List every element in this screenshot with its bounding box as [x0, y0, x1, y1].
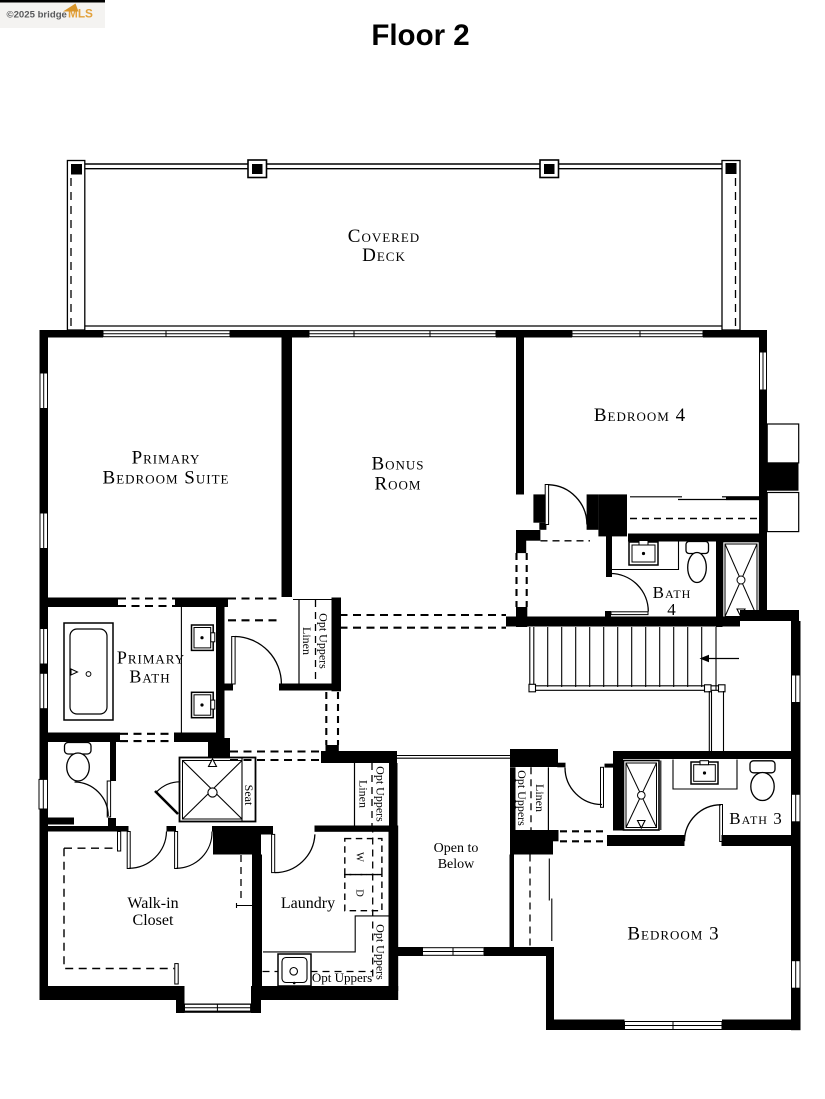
svg-text:Primary: Primary [117, 648, 185, 668]
svg-text:Linen: Linen [300, 627, 314, 655]
svg-text:Opt Uppers: Opt Uppers [374, 766, 388, 822]
svg-text:W: W [354, 852, 365, 862]
svg-text:Opt Uppers: Opt Uppers [374, 924, 388, 980]
svg-text:Open to: Open to [434, 841, 479, 856]
svg-text:Bedroom Suite: Bedroom Suite [103, 468, 230, 489]
svg-text:Bedroom 4: Bedroom 4 [594, 405, 686, 426]
svg-text:Primary: Primary [132, 448, 201, 469]
svg-text:Bath: Bath [129, 667, 170, 687]
svg-text:Room: Room [374, 474, 421, 495]
svg-text:Linen: Linen [533, 784, 547, 812]
svg-text:Bedroom 3: Bedroom 3 [627, 924, 719, 945]
svg-text:Below: Below [438, 857, 475, 872]
svg-text:Laundry: Laundry [281, 895, 335, 912]
svg-text:Bonus: Bonus [371, 454, 424, 475]
svg-text:Floor 2: Floor 2 [371, 19, 469, 52]
svg-text:©2025 bridge: ©2025 bridge [7, 10, 67, 21]
svg-text:Deck: Deck [362, 245, 406, 266]
svg-text:Walk-in: Walk-in [127, 895, 178, 912]
svg-text:Covered: Covered [348, 226, 420, 247]
svg-text:Seat: Seat [242, 785, 256, 806]
svg-text:4: 4 [667, 600, 677, 619]
svg-text:Closet: Closet [133, 912, 174, 929]
svg-text:Opt Uppers: Opt Uppers [515, 770, 529, 826]
svg-text:Opt Uppers: Opt Uppers [317, 613, 331, 669]
svg-text:Opt Uppers: Opt Uppers [312, 970, 372, 985]
svg-text:Linen: Linen [357, 780, 371, 808]
svg-text:D: D [354, 889, 365, 897]
svg-text:Bath 3: Bath 3 [729, 809, 782, 828]
